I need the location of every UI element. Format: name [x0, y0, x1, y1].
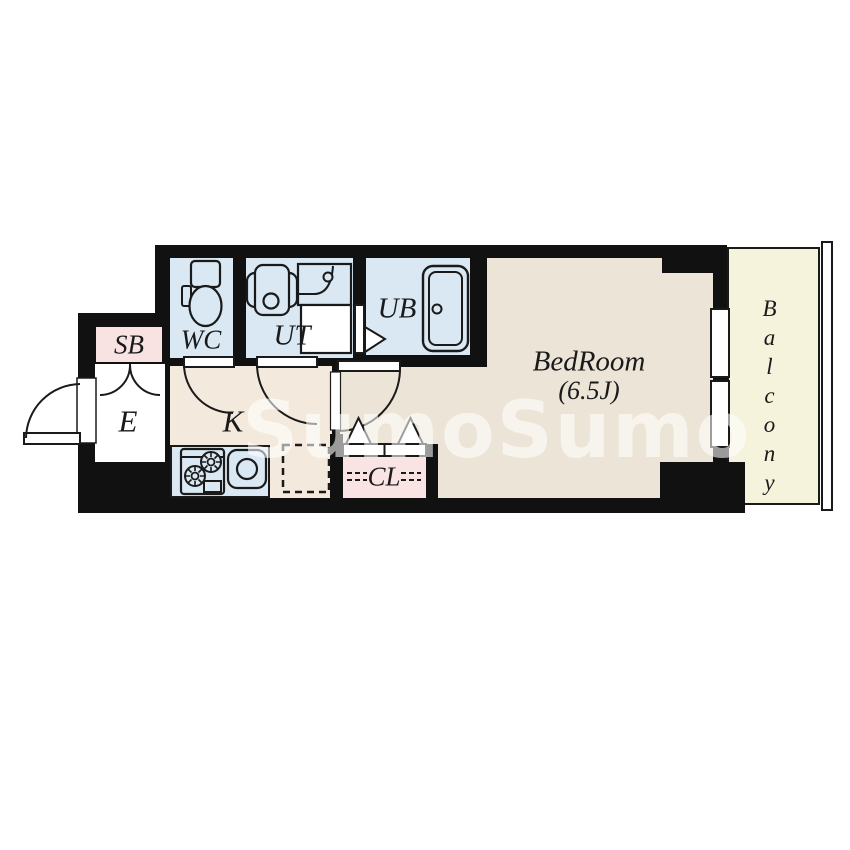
floorplan-canvas: SB WC UT UB E K CL BedRoom (6.5J) Balcon… [0, 0, 850, 850]
label-entrance: E [119, 406, 138, 437]
washer-pan-icon [247, 265, 297, 315]
shoebox-doors [100, 364, 160, 395]
bathtub-icon [423, 266, 468, 351]
label-ub: UB [378, 295, 417, 324]
entrance-door [24, 378, 96, 444]
gas-stove-icon [181, 449, 224, 494]
label-wc: WC [181, 327, 222, 354]
label-sb: SB [114, 332, 144, 359]
toilet-icon [182, 261, 222, 326]
label-bedroom: BedRoom [533, 348, 646, 377]
label-ut: UT [273, 322, 310, 351]
label-kitchen: K [223, 406, 244, 437]
watermark-text: SumoSumo [242, 386, 751, 476]
label-balcony: Balcony [758, 296, 781, 499]
